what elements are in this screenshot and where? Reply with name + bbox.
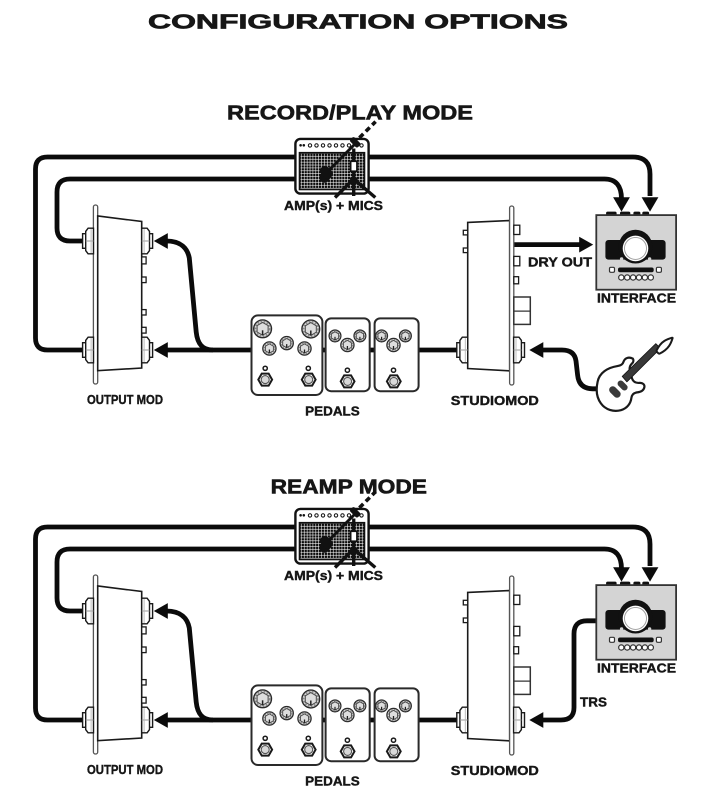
svg-text:OUTPUT MOD: OUTPUT MOD <box>87 762 163 777</box>
svg-text:PEDALS: PEDALS <box>305 404 360 419</box>
svg-text:OUTPUT MOD: OUTPUT MOD <box>87 392 163 407</box>
svg-text:STUDIOMOD: STUDIOMOD <box>451 393 539 408</box>
svg-text:STUDIOMOD: STUDIOMOD <box>451 763 539 778</box>
svg-text:CONFIGURATION OPTIONS: CONFIGURATION OPTIONS <box>148 11 568 34</box>
svg-text:REAMP MODE: REAMP MODE <box>271 477 427 499</box>
svg-text:INTERFACE: INTERFACE <box>597 661 676 676</box>
svg-text:TRS: TRS <box>580 695 607 710</box>
svg-text:INTERFACE: INTERFACE <box>597 291 676 306</box>
svg-text:DRY OUT: DRY OUT <box>528 255 592 270</box>
svg-text:AMP(s) + MICS: AMP(s) + MICS <box>284 198 384 213</box>
svg-text:PEDALS: PEDALS <box>305 774 360 789</box>
svg-text:AMP(s) + MICS: AMP(s) + MICS <box>284 568 384 583</box>
svg-text:RECORD/PLAY MODE: RECORD/PLAY MODE <box>227 103 473 125</box>
